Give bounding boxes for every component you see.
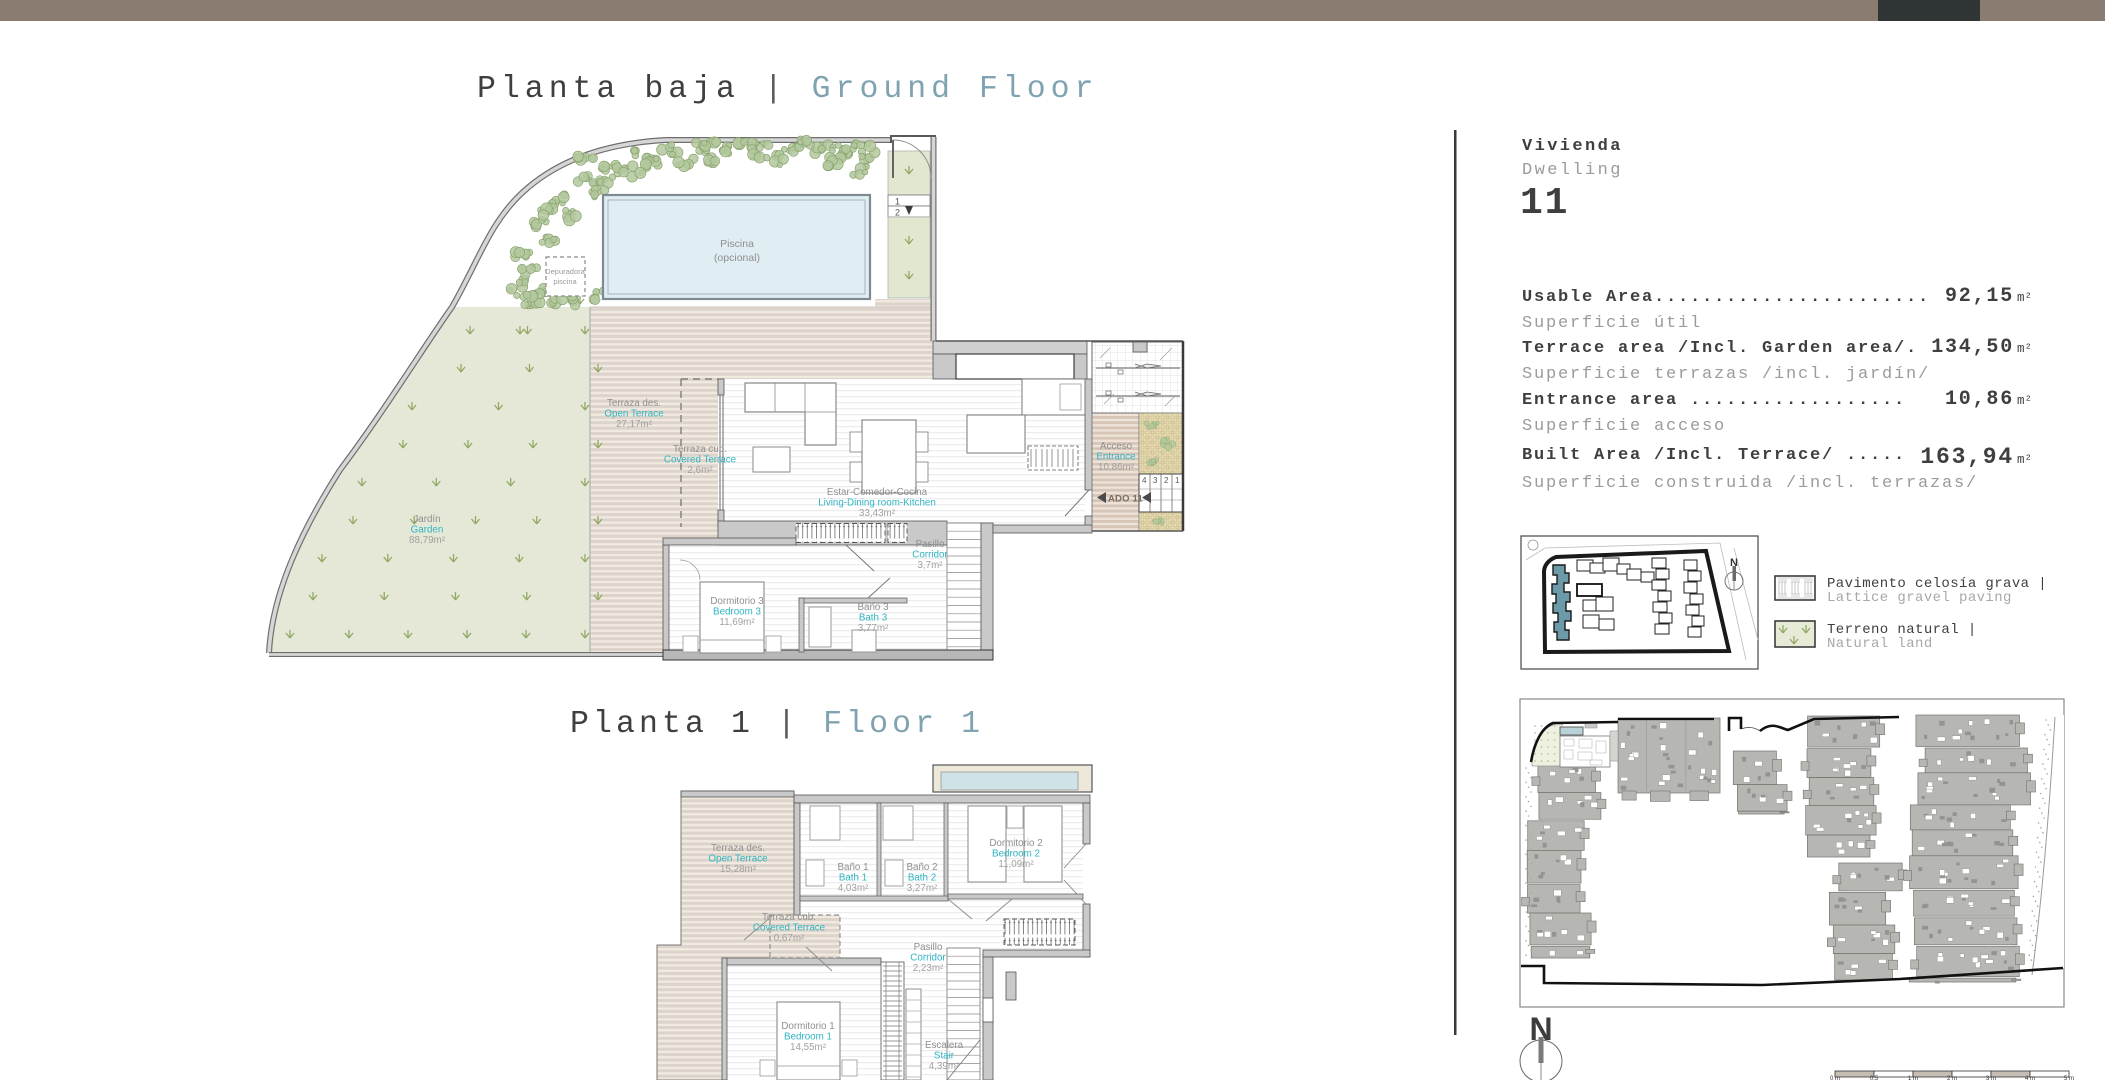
svg-text:Bath 2: Bath 2: [908, 873, 936, 884]
svg-text:Natural land: Natural land: [1827, 636, 1933, 652]
svg-text:Piscina: Piscina: [720, 238, 754, 250]
svg-text:Open Terrace: Open Terrace: [604, 409, 664, 420]
svg-text:m²: m²: [2017, 394, 2032, 408]
svg-text:33,43m²: 33,43m²: [859, 508, 896, 519]
svg-text:Dormitorio 1: Dormitorio 1: [781, 1021, 834, 1032]
svg-text:Dormitorio 3: Dormitorio 3: [710, 596, 764, 607]
svg-text:163,94: 163,94: [1920, 444, 2014, 470]
svg-text:2: 2: [895, 208, 900, 218]
svg-text:4,03m²: 4,03m²: [838, 883, 869, 894]
svg-text:Vivienda: Vivienda: [1522, 137, 1623, 156]
svg-text:Bedroom 2: Bedroom 2: [992, 849, 1040, 860]
svg-text:Baño 1: Baño 1: [837, 862, 868, 873]
svg-text:3,27m²: 3,27m²: [907, 883, 938, 894]
svg-text:Bedroom 3: Bedroom 3: [713, 607, 761, 618]
svg-text:Entrance area ...............: Entrance area ..................: [1522, 391, 1906, 410]
svg-text:m²: m²: [2017, 453, 2032, 467]
svg-text:3: 3: [1153, 476, 1158, 485]
svg-text:Pasillo: Pasillo: [916, 539, 945, 550]
svg-text:piscina: piscina: [553, 277, 577, 286]
svg-text:5 m: 5 m: [2064, 1076, 2074, 1080]
svg-text:Pasillo: Pasillo: [914, 942, 943, 953]
svg-text:Covered Terrace: Covered Terrace: [664, 455, 737, 466]
svg-text:10,86m²: 10,86m²: [1098, 462, 1135, 473]
svg-text:3 m: 3 m: [1986, 1076, 1996, 1080]
svg-text:2,6m²: 2,6m²: [687, 465, 713, 476]
svg-text:Superficie útil: Superficie útil: [1522, 314, 1702, 333]
svg-text:Planta baja | Ground Floor: Planta baja | Ground Floor: [477, 72, 1099, 107]
svg-text:0 m: 0 m: [1830, 1076, 1840, 1080]
svg-text:Bath 1: Bath 1: [839, 873, 867, 884]
svg-text:Terraza des.: Terraza des.: [711, 843, 765, 854]
svg-text:134,50: 134,50: [1931, 336, 2014, 359]
svg-text:Bedroom 1: Bedroom 1: [784, 1032, 832, 1043]
svg-text:Corridor: Corridor: [910, 953, 946, 964]
svg-text:Built Area /Incl. Terrace/ ...: Built Area /Incl. Terrace/ .....: [1522, 446, 1906, 465]
svg-text:Usable Area...................: Usable Area.......................: [1522, 288, 1930, 307]
svg-text:11,69m²: 11,69m²: [719, 617, 755, 628]
svg-text:Terraza cub.: Terraza cub.: [762, 912, 816, 923]
svg-text:(opcional): (opcional): [714, 252, 760, 264]
svg-text:Superficie terrazas /incl. jar: Superficie terrazas /incl. jardín/: [1522, 365, 1930, 384]
svg-text:1: 1: [895, 197, 900, 207]
svg-text:Living-Dining room-Kitchen: Living-Dining room-Kitchen: [818, 498, 936, 509]
svg-text:14,55m²: 14,55m²: [790, 1042, 827, 1053]
svg-text:m²: m²: [2017, 291, 2032, 305]
svg-text:2,23m²: 2,23m²: [913, 963, 944, 974]
svg-text:ADO 11: ADO 11: [1108, 494, 1144, 505]
svg-text:Terraza cub.: Terraza cub.: [673, 444, 727, 455]
svg-text:4,39m²: 4,39m²: [929, 1061, 960, 1072]
svg-text:Baño 2: Baño 2: [906, 862, 937, 873]
svg-text:Covered Terrace: Covered Terrace: [753, 923, 826, 934]
svg-text:Depuradora: Depuradora: [545, 267, 585, 276]
svg-text:Superficie acceso: Superficie acceso: [1522, 417, 1726, 436]
svg-text:92,15: 92,15: [1945, 285, 2014, 308]
svg-text:11,09m²: 11,09m²: [998, 859, 1034, 870]
svg-text:Corridor: Corridor: [912, 550, 948, 561]
svg-text:Superficie construida /incl. t: Superficie construida /incl. terrazas/: [1522, 474, 1978, 493]
svg-text:Entrance: Entrance: [1096, 452, 1136, 463]
svg-text:Terraza des.: Terraza des.: [607, 398, 661, 409]
svg-text:88,79m²: 88,79m²: [409, 535, 446, 546]
svg-text:Acceso: Acceso: [1100, 441, 1133, 452]
svg-text:Dwelling: Dwelling: [1522, 161, 1623, 180]
svg-text:Open Terrace: Open Terrace: [708, 854, 768, 865]
svg-text:27,17m²: 27,17m²: [616, 419, 653, 430]
svg-text:Garden: Garden: [411, 525, 444, 536]
svg-text:Lattice gravel paving: Lattice gravel paving: [1827, 590, 2012, 606]
svg-text:0,5: 0,5: [1870, 1076, 1879, 1080]
svg-text:Escalera: Escalera: [925, 1040, 964, 1051]
svg-text:3,77m²: 3,77m²: [858, 623, 889, 634]
svg-text:2: 2: [1164, 476, 1169, 485]
svg-text:Terrace area /Incl. Garden are: Terrace area /Incl. Garden area/.: [1522, 339, 1918, 358]
svg-text:15,28m²: 15,28m²: [720, 864, 757, 875]
svg-text:1: 1: [1175, 476, 1180, 485]
svg-text:Bath 3: Bath 3: [859, 613, 888, 624]
svg-text:0,67m²: 0,67m²: [774, 933, 805, 944]
svg-text:Baño 3: Baño 3: [857, 602, 889, 613]
svg-text:m²: m²: [2017, 342, 2032, 356]
svg-text:Stair: Stair: [934, 1051, 955, 1062]
svg-text:Jardín: Jardín: [413, 514, 440, 525]
svg-text:11: 11: [1520, 182, 1569, 225]
svg-text:2 m: 2 m: [1947, 1076, 1957, 1080]
svg-text:10,86: 10,86: [1945, 388, 2014, 411]
svg-text:Planta 1 | Floor 1: Planta 1 | Floor 1: [570, 707, 984, 742]
svg-text:4 m: 4 m: [2025, 1076, 2035, 1080]
svg-text:Estar-Comedor-Cocina: Estar-Comedor-Cocina: [827, 487, 928, 498]
svg-text:1 m: 1 m: [1908, 1076, 1918, 1080]
svg-text:3,7m²: 3,7m²: [917, 560, 943, 571]
svg-text:4: 4: [1142, 476, 1147, 485]
svg-text:Dormitorio 2: Dormitorio 2: [989, 838, 1042, 849]
